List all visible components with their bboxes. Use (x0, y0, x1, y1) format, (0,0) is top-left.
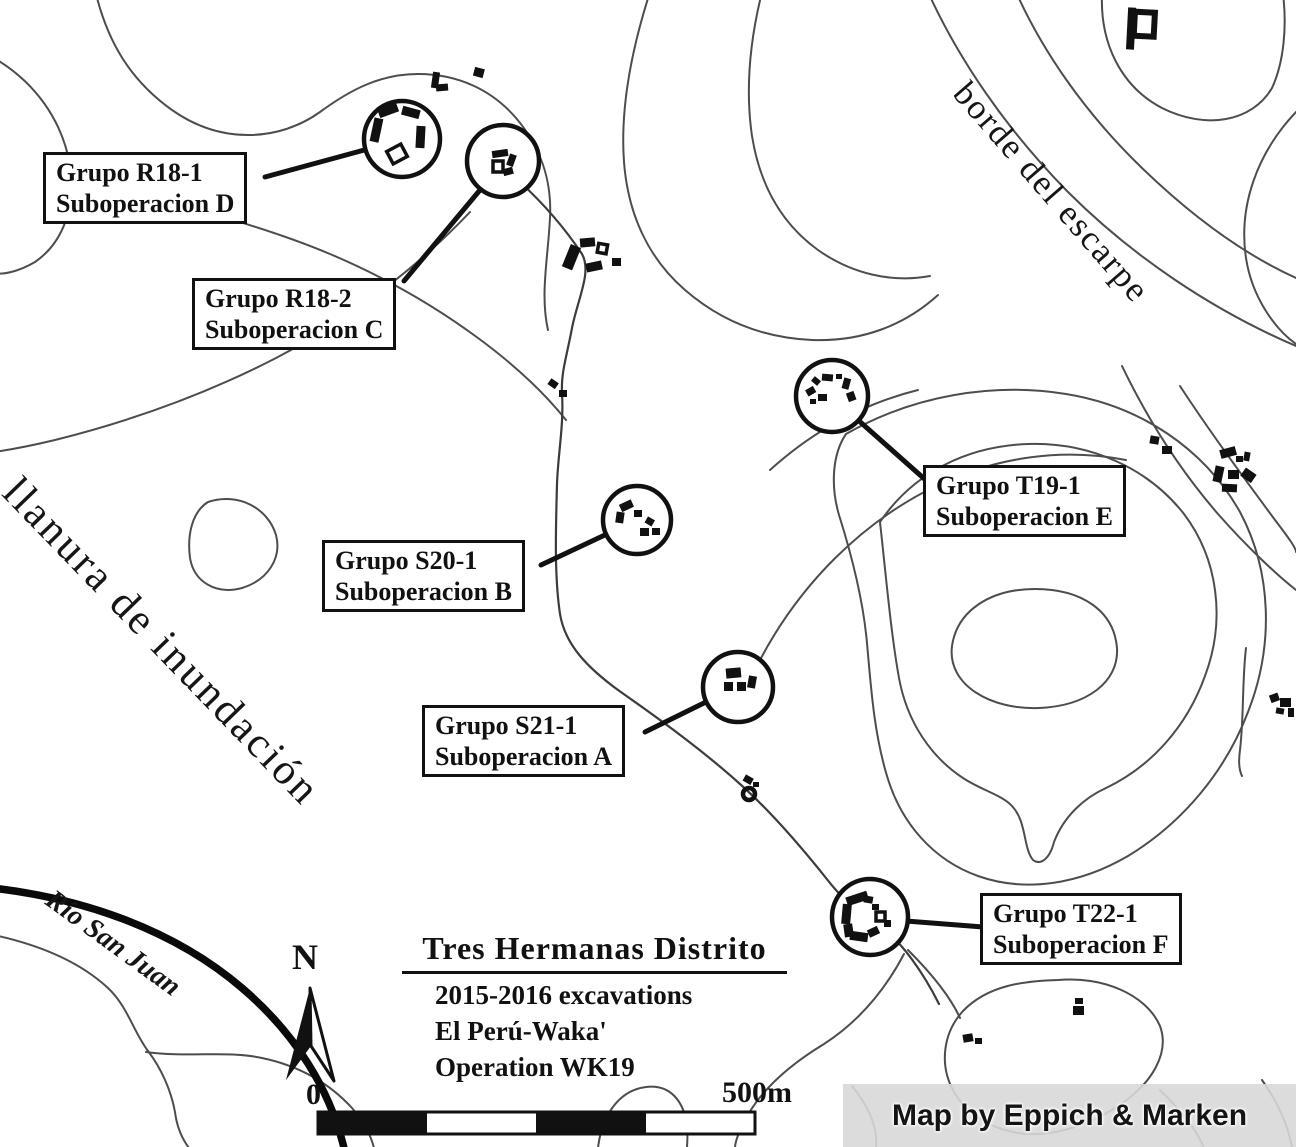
site-label-R18-2: Grupo R18-2 Suboperacion C (192, 278, 396, 350)
site-group-name: Grupo S20-1 (335, 545, 512, 576)
site-group-name: Grupo S21-1 (435, 710, 612, 741)
site-circle-S20-1 (603, 486, 671, 554)
map-subtitle-excavations: 2015-2016 excavations (435, 980, 840, 1010)
scale-bar (318, 1112, 755, 1134)
scale-zero-label: 0 (306, 1078, 321, 1112)
ruins-structures (370, 7, 1294, 1044)
site-suboperation: Suboperacion B (335, 576, 512, 607)
ruins-mid-upper (562, 237, 621, 272)
site-suboperation: Suboperacion F (993, 929, 1169, 960)
site-group-name: Grupo T22-1 (993, 898, 1169, 929)
archaeological-map: borde del escarpe llanura de inundación … (0, 0, 1296, 1147)
site-label-T22-1: Grupo T22-1 Suboperacion F (980, 893, 1182, 965)
site-group-name: Grupo R18-2 (205, 283, 383, 314)
ruins-far-right (1269, 693, 1294, 717)
title-block: Tres Hermanas Distrito 2015-2016 excavat… (330, 930, 840, 1082)
site-suboperation: Suboperacion D (56, 188, 234, 219)
map-title: Tres Hermanas Distrito (402, 930, 787, 974)
site-label-T19-1: Grupo T19-1 Suboperacion E (923, 465, 1126, 537)
map-subtitle-sitename: El Perú-Waka' (435, 1016, 840, 1046)
site-label-S20-1: Grupo S20-1 Suboperacion B (322, 540, 525, 612)
attribution-bar: Map by Eppich & Marken (843, 1084, 1296, 1147)
ruins-top-right-p (1126, 7, 1155, 50)
site-suboperation: Suboperacion E (936, 501, 1113, 532)
site-suboperation: Suboperacion A (435, 741, 612, 772)
site-label-S21-1: Grupo S21-1 Suboperacion A (422, 705, 625, 777)
site-suboperation: Suboperacion C (205, 314, 383, 345)
ruins-trail-small (743, 774, 759, 800)
north-label: N (292, 936, 318, 978)
scale-max-label: 500m (722, 1076, 792, 1110)
site-label-R18-1: Grupo R18-1 Suboperacion D (43, 152, 247, 224)
rio-san-juan-line (0, 888, 344, 1147)
site-group-name: Grupo R18-1 (56, 157, 234, 188)
site-circle-T19-1 (796, 360, 868, 432)
site-group-name: Grupo T19-1 (936, 470, 1113, 501)
attribution-text: Map by Eppich & Marken (892, 1099, 1247, 1133)
